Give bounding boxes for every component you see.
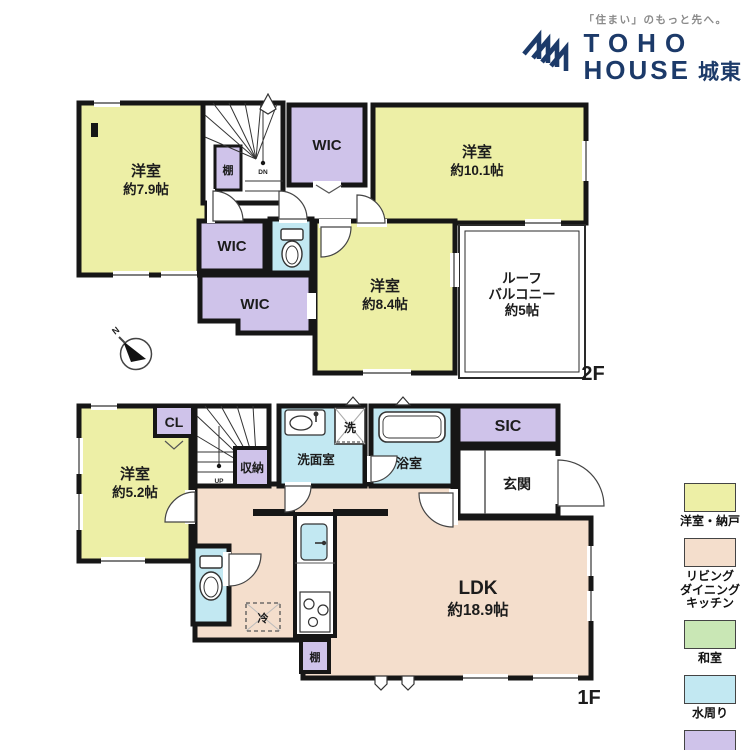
closet-label: CL	[165, 414, 184, 430]
shelf-2f-label: 棚	[223, 163, 234, 177]
sink-icon	[285, 410, 325, 435]
bathtub-icon	[379, 412, 445, 442]
kitchen-sink-icon	[301, 524, 327, 560]
legend-swatch-storage	[684, 730, 736, 750]
wall-stub-right	[333, 509, 388, 516]
bathroom-label: 浴室	[396, 456, 422, 471]
floor-label-2f: 2F	[581, 363, 604, 385]
storage-label: 収納	[240, 460, 264, 475]
wic-low-label: WIC	[240, 296, 269, 313]
room-2f-84-name: 洋室	[370, 277, 400, 295]
legend-label-ldk: リビング ダイニング キッチン	[680, 570, 740, 611]
balcony-label-2: バルコニー	[488, 287, 555, 302]
room-2f-84-size: 約8.4帖	[362, 296, 408, 312]
logo-brand-line2: HOUSE城東	[584, 57, 742, 84]
floor-label-1f: 1F	[577, 687, 600, 709]
stair-dn-dot	[261, 161, 265, 165]
stair-top-marker	[260, 94, 276, 114]
legend-swatch-japanese	[684, 620, 736, 649]
compass: N	[100, 322, 164, 378]
legend-label-water: 水周り	[692, 707, 728, 721]
balcony-label-1: ルーフ	[502, 271, 542, 286]
stair-up-label: UP	[214, 478, 224, 485]
stair-dn-label: DN	[258, 169, 268, 176]
toilet-icon-2f	[281, 229, 303, 267]
toho-logo-mark	[521, 21, 575, 75]
room-1f-52-name: 洋室	[120, 465, 150, 483]
wall-post	[91, 123, 98, 137]
fridge-label: 冷	[258, 611, 269, 625]
room-2f-101-size: 約10.1帖	[450, 162, 504, 178]
washroom-label: 洗面室	[297, 452, 335, 467]
compass-north-label: N	[110, 325, 121, 337]
entrance-label: 玄関	[503, 476, 531, 492]
toilet-icon-1f	[200, 556, 222, 600]
room-2f-79-name: 洋室	[131, 162, 161, 180]
logo-tagline: 「住まい」のもっと先へ。	[584, 12, 742, 27]
room-1f-52-size: 約5.2帖	[112, 484, 158, 500]
shelf-1f-label: 棚	[310, 650, 321, 664]
floor-plan-page: 「住まい」のもっと先へ。 TOHO HOUSE城東	[0, 0, 750, 750]
stair-up-dot	[217, 464, 221, 468]
floor-plan-1f: 洋室 約5.2帖 CL UP 収納 洗面室 洗 浴室 SIC 玄関 LDK 約1…	[73, 396, 618, 712]
laundry-label: 洗	[344, 420, 356, 435]
legend-swatch-water	[684, 675, 736, 704]
sic-label: SIC	[495, 418, 522, 435]
balcony-label-3: 約5帖	[505, 302, 540, 318]
ldk-name: LDK	[458, 578, 497, 599]
wic-mid-label: WIC	[217, 238, 246, 255]
logo-branch: 城東	[698, 61, 742, 84]
logo-brand-line1: TOHO	[584, 30, 742, 57]
wic-top-label: WIC	[312, 137, 341, 154]
toho-house-logo: 「住まい」のもっと先へ。 TOHO HOUSE城東	[521, 12, 742, 84]
stove-icon	[300, 592, 330, 632]
room-type-legend: 洋室・納戸 リビング ダイニング キッチン 和室 水周り 収納	[668, 483, 750, 750]
legend-label-japanese: 和室	[698, 652, 722, 666]
room-2f-79-size: 約7.9帖	[123, 181, 169, 197]
legend-label-western: 洋室・納戸	[680, 515, 740, 529]
room-2f-101-name: 洋室	[462, 143, 492, 161]
legend-swatch-ldk	[684, 538, 736, 567]
ldk-size: 約18.9帖	[447, 600, 509, 619]
legend-swatch-western	[684, 483, 736, 512]
